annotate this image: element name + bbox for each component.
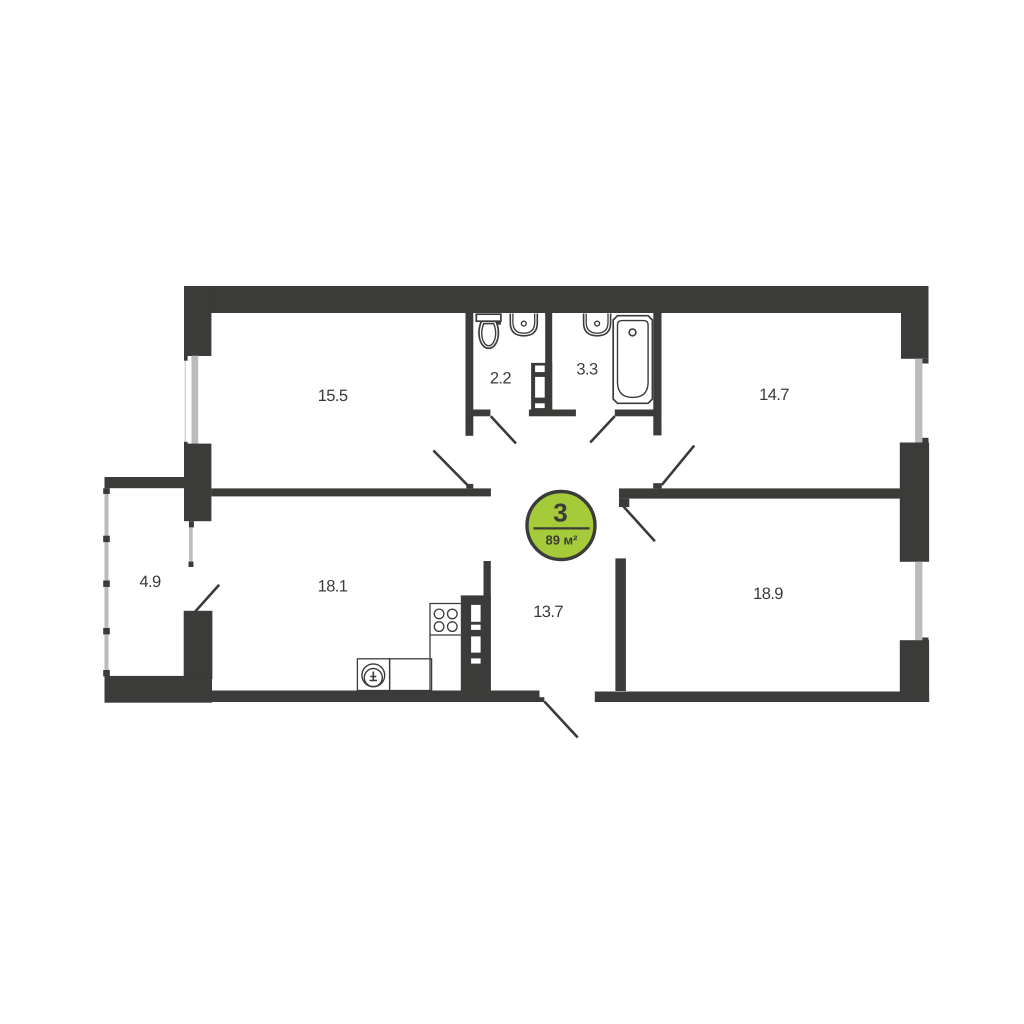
svg-text:4.9: 4.9 (139, 573, 161, 591)
svg-text:2.2: 2.2 (490, 370, 512, 388)
svg-text:14.7: 14.7 (759, 386, 789, 404)
svg-text:89 м²: 89 м² (545, 533, 578, 548)
svg-text:18.9: 18.9 (753, 585, 783, 603)
svg-text:13.7: 13.7 (533, 603, 563, 621)
svg-text:18.1: 18.1 (318, 577, 348, 595)
svg-text:15.5: 15.5 (318, 387, 348, 405)
svg-text:3: 3 (553, 498, 567, 528)
svg-text:3.3: 3.3 (576, 360, 598, 378)
